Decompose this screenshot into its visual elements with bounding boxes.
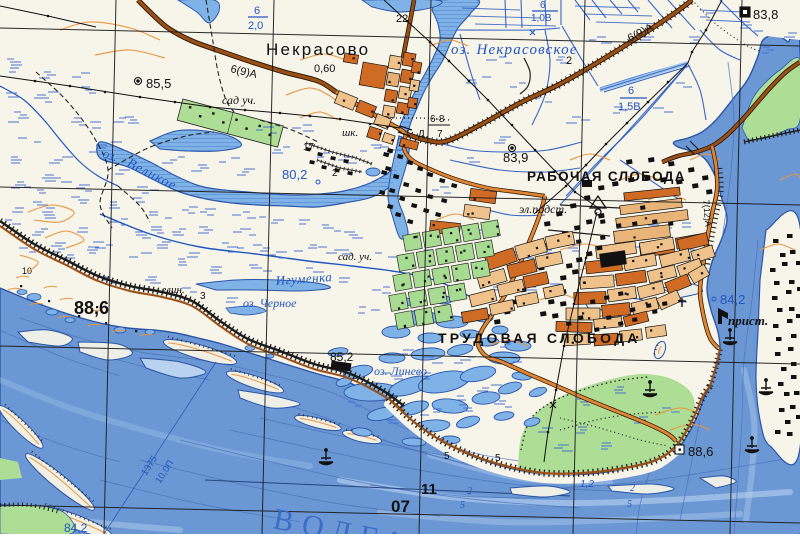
svg-text:сад. уч.: сад. уч.	[338, 251, 372, 263]
svg-text:ТРУДОВАЯ СЛОБОДА: ТРУДОВАЯ СЛОБОДА	[438, 330, 641, 346]
svg-text:шк.: шк.	[342, 127, 358, 139]
svg-text:2: 2	[332, 168, 338, 179]
svg-text:2,0: 2,0	[248, 20, 263, 32]
svg-text:Некрасово: Некрасово	[266, 40, 370, 59]
svg-text:83,8: 83,8	[753, 7, 778, 22]
svg-text:85,2: 85,2	[330, 350, 354, 364]
svg-text:5: 5	[460, 500, 465, 511]
svg-text:22: 22	[396, 13, 408, 25]
svg-text:РАБОЧАЯ СЛОБОДА: РАБОЧАЯ СЛОБОДА	[527, 169, 686, 184]
svg-text:6: 6	[628, 85, 634, 97]
svg-text:Д: Д	[418, 129, 425, 140]
svg-text:85,5: 85,5	[146, 76, 171, 91]
svg-text:7: 7	[437, 129, 443, 140]
svg-text:2: 2	[467, 486, 472, 497]
svg-text:1,2: 1,2	[580, 479, 594, 490]
svg-text:оз. Линево: оз. Линево	[374, 364, 427, 378]
svg-text:эл.подст.: эл.подст.	[519, 202, 567, 216]
svg-text:07: 07	[391, 497, 410, 516]
svg-text:оз. Некрасовское: оз. Некрасовское	[451, 42, 578, 58]
svg-text:1,0В: 1,0В	[531, 13, 552, 24]
svg-text:88,6: 88,6	[688, 444, 713, 459]
svg-text:6: 6	[254, 5, 260, 17]
svg-text:оз. Черное: оз. Черное	[243, 296, 297, 310]
svg-text:6: 6	[540, 0, 546, 11]
svg-text:84,2: 84,2	[64, 521, 88, 534]
svg-text:10: 10	[22, 266, 32, 276]
svg-text:1,5В: 1,5В	[618, 101, 641, 113]
svg-text:3: 3	[200, 291, 206, 302]
svg-text:0,60: 0,60	[314, 63, 335, 75]
svg-text:88,6: 88,6	[74, 298, 109, 318]
svg-text:глин.: глин.	[162, 284, 185, 296]
svg-text:11: 11	[421, 481, 437, 498]
svg-text:5: 5	[495, 453, 501, 464]
svg-text:2: 2	[630, 483, 635, 494]
svg-text:84,2: 84,2	[720, 292, 745, 307]
svg-text:5: 5	[444, 451, 450, 462]
svg-text:5: 5	[627, 499, 632, 510]
svg-text:83,9: 83,9	[503, 150, 528, 165]
svg-text:6-8: 6-8	[430, 114, 445, 125]
svg-text:80,2: 80,2	[282, 167, 307, 182]
svg-text:17: 17	[303, 142, 315, 153]
svg-text:сад уч.: сад уч.	[222, 93, 256, 107]
svg-text:прист.: прист.	[728, 313, 768, 328]
